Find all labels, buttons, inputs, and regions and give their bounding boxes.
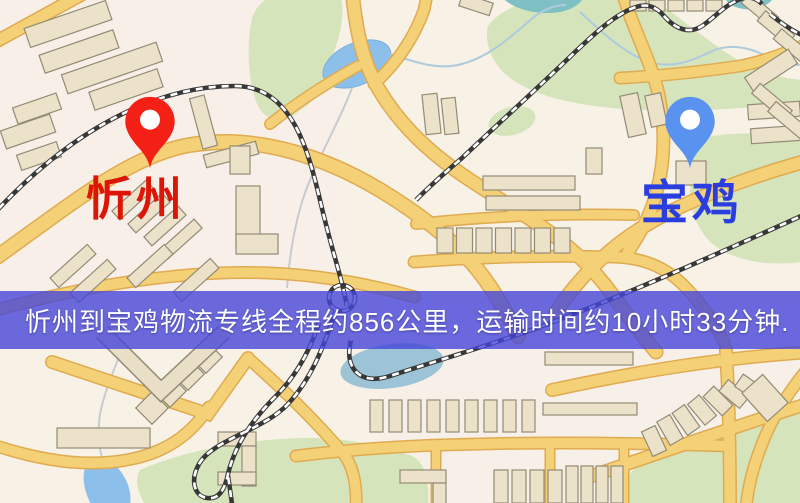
route-info-text: 忻州到宝鸡物流专线全程约856公里，运输时间约10小时33分钟.	[0, 302, 789, 339]
map-canvas: 忻州 宝鸡 忻州到宝鸡物流专线全程约856公里，运输时间约10小时33分钟.	[0, 0, 800, 503]
destination-label: 宝鸡	[641, 179, 743, 226]
route-info-banner: 忻州到宝鸡物流专线全程约856公里，运输时间约10小时33分钟.	[0, 291, 800, 349]
origin-pin-icon	[121, 94, 179, 170]
map-background	[0, 0, 800, 503]
origin-label: 忻州	[86, 176, 186, 222]
destination-pin-icon	[661, 94, 719, 170]
